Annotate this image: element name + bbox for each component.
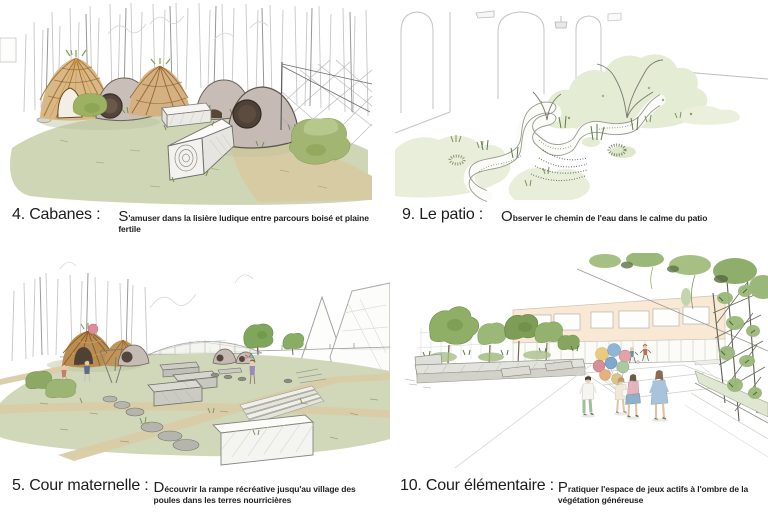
drop-cap: D [154,479,165,496]
caption-elementaire: 10. Cour élémentaire : Pratiquer l'espac… [400,477,764,505]
caption-maternelle: 5. Cour maternelle : Découvrir la rampe … [12,477,376,505]
elementaire-figure [395,253,768,470]
drop-cap: P [558,479,568,496]
caption-elementaire-label: 10. Cour élémentaire : [400,477,554,495]
drop-cap: S [118,208,128,225]
wall-sign [476,11,494,18]
drop-cap: O [501,208,513,225]
caption-cabanes: 4. Cabanes : S'amuser dans la lisière lu… [12,206,390,234]
caption-maternelle-text: écouvrir la rampe récréative jusqu'au vi… [154,484,356,505]
children-walking [580,370,668,422]
planted-masses [395,54,740,200]
caption-maternelle-label: 5. Cour maternelle : [12,477,149,495]
maternelle-figure [0,253,390,470]
caption-patio-description: Observer le chemin de l'eau dans le calm… [501,209,753,224]
caption-patio-label: 9. Le patio : [402,206,483,224]
cabanes-illustration [0,0,380,205]
wall-lamp [555,16,567,28]
caption-patio: 9. Le patio : Observer le chemin de l'ea… [402,206,753,224]
caption-elementaire-description: Pratiquer l'espace de jeux actifs à l'om… [558,480,764,505]
pink-balloon [88,324,98,334]
caption-cabanes-label: 4. Cabanes : [12,206,100,224]
cabanes-figure [0,0,380,205]
patio-figure [395,0,768,205]
elementaire-illustration [395,253,768,470]
maternelle-illustration [0,253,390,470]
caption-maternelle-description: Découvrir la rampe récréative jusqu'au v… [154,480,376,505]
caption-patio-text: bserver le chemin de l'eau dans le calme… [513,213,708,223]
patio-illustration [395,0,768,205]
caption-elementaire-text: ratiquer l'espace de jeux actifs à l'omb… [558,484,748,505]
caption-cabanes-text: 'amuser dans la lisière ludique entre pa… [118,213,369,234]
presentation-page: { "figures": [ { "label": "4. Cabanes :"… [0,0,768,514]
caption-cabanes-description: S'amuser dans la lisière ludique entre p… [118,209,390,234]
